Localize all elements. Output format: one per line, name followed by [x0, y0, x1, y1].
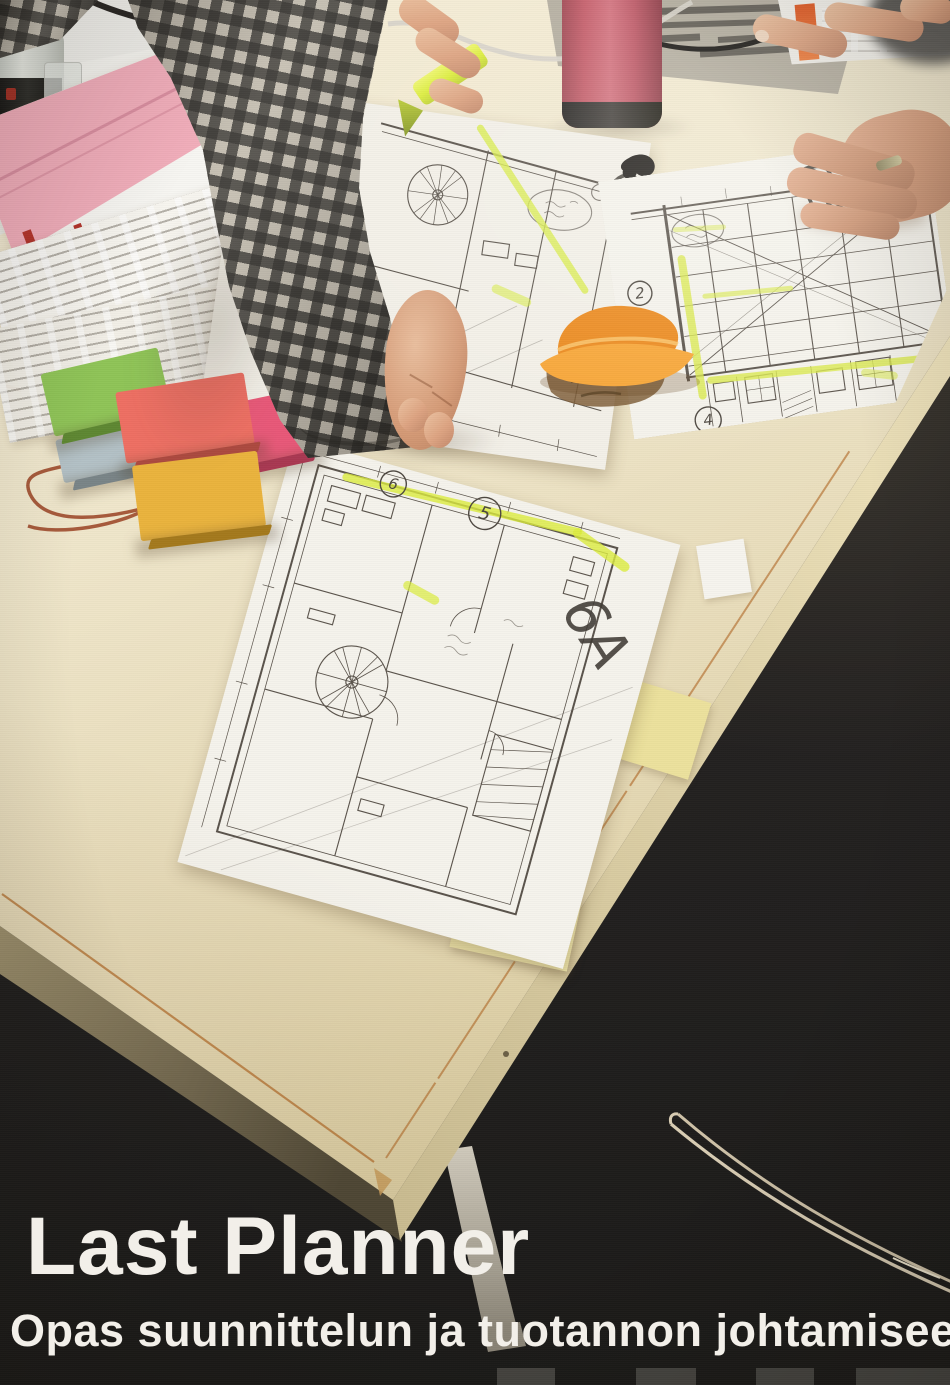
white-scrap [696, 539, 752, 600]
highlighter-smudge [495, 289, 528, 302]
orange-sticky-note [528, 286, 708, 398]
thermos-base-cap [562, 102, 662, 128]
book-cover-photo: 010 [0, 0, 950, 1385]
cover-subtitle: Opas suunnittelun ja tuotannon johtamise… [10, 1305, 950, 1357]
highlighter-mark [460, 128, 605, 290]
cover-title: Last Planner [26, 1206, 530, 1288]
sheet-6a-label: 6A [549, 584, 644, 681]
knuckle-2 [424, 412, 454, 448]
